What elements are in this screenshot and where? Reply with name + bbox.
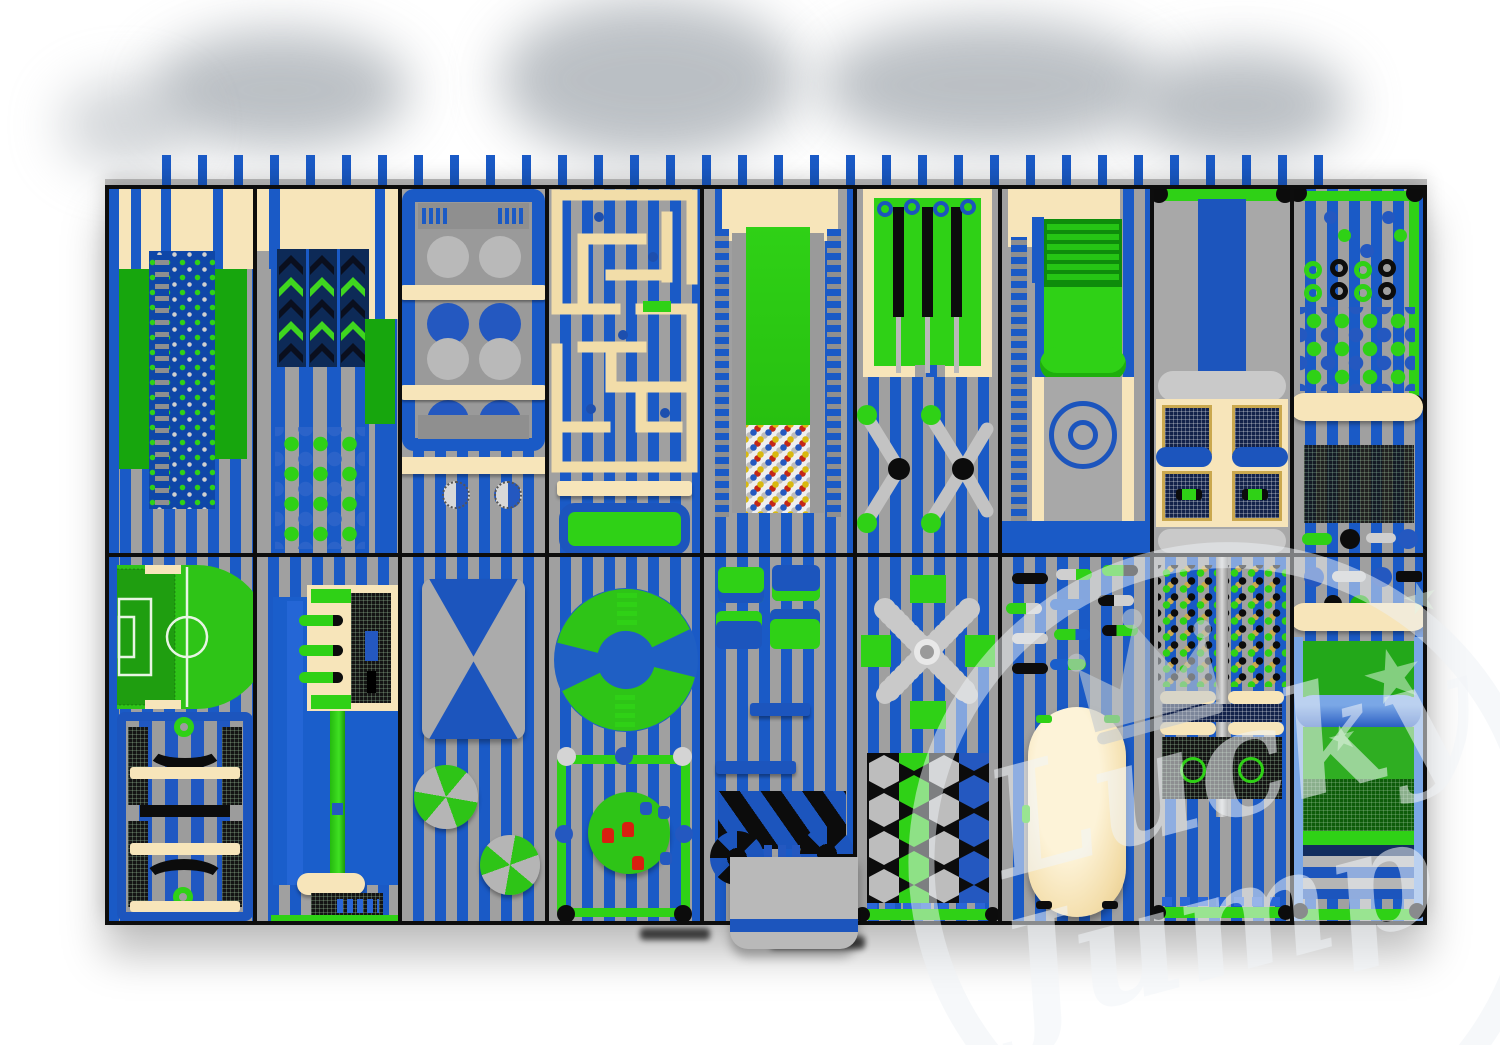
beige-beam [402, 385, 545, 400]
zone-dotwall-trampoline [1154, 557, 1290, 921]
peg-gray-bar [1332, 571, 1366, 582]
side-rail-lblue [1294, 637, 1303, 921]
beige-crossbar [130, 901, 240, 912]
pinwheel-disc [414, 765, 478, 829]
post-ball-gray [557, 747, 576, 766]
climb-ladder [824, 229, 844, 517]
deck-post [131, 189, 141, 269]
pad-capsule [1156, 447, 1212, 467]
hexagon-path [867, 753, 989, 903]
backdrop-shadow [820, 20, 1160, 150]
side-rail [1032, 377, 1044, 521]
blue-roller-tube [1296, 695, 1421, 729]
game-screen [351, 593, 391, 703]
ladder-strip [155, 255, 169, 505]
airbag-grip [1036, 715, 1052, 723]
hold-ring [1354, 261, 1372, 279]
beige-crossbar [130, 843, 240, 855]
hold-ring [1354, 284, 1372, 302]
hold-ring [1330, 259, 1348, 277]
tramp-bed-strip [1162, 704, 1282, 722]
net-panel [1304, 445, 1414, 523]
oval-airbag [1028, 707, 1126, 917]
dot-grid [1300, 307, 1415, 391]
hold-ring [1330, 282, 1348, 300]
post-ball-blue [675, 825, 693, 843]
beige-bench [557, 481, 692, 496]
beige-roller-bar [1294, 393, 1423, 421]
slide-end-roller [1040, 347, 1126, 381]
step-peg [1054, 629, 1090, 640]
zone-climbing-panels [109, 189, 253, 553]
side-net-panel [128, 727, 148, 805]
blue-handle [640, 802, 652, 815]
green-slide-lane [746, 227, 810, 425]
blue-dash-row [1162, 897, 1282, 906]
green-strip [1303, 831, 1414, 845]
tumbling-square [422, 579, 525, 739]
screen-black-mark [367, 671, 376, 693]
zone-dot-wall [1294, 189, 1423, 553]
grip-bar [418, 415, 529, 439]
game-unit-footer [311, 695, 351, 709]
zone-pegs-airbag [1002, 557, 1150, 921]
hold-ring [1304, 261, 1322, 279]
wall-run-stripe [1198, 199, 1246, 377]
green-ring [1180, 757, 1206, 783]
green-end-bar [1158, 907, 1286, 918]
rail-enclosure [557, 755, 690, 917]
grip-handle [1242, 489, 1268, 500]
green-ring [1238, 757, 1264, 783]
corner-bumper [985, 907, 998, 921]
zone-wallrun-trampoline [1154, 189, 1290, 553]
zone-chevron-wall [257, 189, 398, 553]
foam-pit-panel [1162, 737, 1282, 799]
slide-side-lane [732, 233, 746, 513]
screen-blue-mark [365, 631, 378, 661]
step-peg [1012, 573, 1048, 584]
pole-blue-clip [332, 803, 343, 815]
playground-park [105, 155, 1427, 960]
deck-post [1032, 217, 1044, 283]
ball-pit [746, 425, 810, 513]
armchair-blue [772, 565, 820, 601]
pole-black [893, 207, 904, 317]
mesh-trampoline [1303, 779, 1414, 831]
corner-bumper [1406, 189, 1423, 202]
green-climb-mat [215, 269, 247, 459]
zone-ball-course [402, 189, 545, 553]
pole-ring [877, 201, 893, 217]
corner-bumper [1278, 905, 1290, 920]
red-handle [602, 828, 614, 843]
scatter-dot [1382, 211, 1395, 224]
red-handle [632, 856, 644, 870]
airbag-grip [1022, 805, 1030, 823]
zone-lounge-slide [704, 557, 853, 921]
scatter-dot [1394, 229, 1407, 242]
scatter-dot [1360, 244, 1374, 258]
corner-bumper [857, 907, 870, 921]
obstacle-balls [415, 229, 532, 439]
pole-tail [954, 317, 959, 373]
zone-slide-ballpit [704, 189, 853, 553]
backdrop-shadow [500, 0, 800, 160]
green-pole [330, 711, 345, 877]
backdrop-shadow [1130, 50, 1350, 160]
grip-dashes [498, 208, 526, 224]
green-landing-mat [559, 503, 690, 553]
beige-crossbar [130, 767, 240, 779]
zone-soccer-basketball [109, 557, 253, 921]
soccer-field [117, 565, 253, 709]
tramp-beige-bar [1160, 722, 1216, 735]
post-ball-blue [555, 825, 573, 843]
zone-donut [549, 557, 700, 921]
maze-walls [549, 189, 700, 474]
grid-divider-row [105, 553, 1427, 557]
grip-dashes [422, 208, 450, 224]
green-step [299, 645, 343, 656]
side-net-panel [222, 727, 242, 805]
blue-triangle-bottom [422, 659, 525, 739]
step-peg [1012, 633, 1048, 644]
wall-post-teeth [135, 155, 1325, 185]
airbag-grip [1102, 901, 1118, 909]
tramp-beige-bar [1228, 722, 1284, 735]
stool-obstacle [442, 481, 470, 509]
platform-blue-stripe [730, 919, 858, 932]
side-rail-lblue [1414, 637, 1423, 921]
step-band-gray [1303, 878, 1414, 889]
step-band-blue [1303, 889, 1414, 899]
chevron-climb-mat [277, 249, 369, 367]
climb-ladder [1008, 237, 1030, 521]
climb-ladder [712, 229, 732, 517]
step-peg [1006, 603, 1042, 614]
green-mat [1303, 727, 1414, 779]
hold-ring [1378, 259, 1396, 277]
pole-black [922, 207, 933, 317]
peg-black-dot [1340, 529, 1360, 549]
scatter-dot [1338, 229, 1351, 242]
step-peg [1012, 663, 1048, 674]
pole-room-door-gap [915, 365, 945, 377]
hold-ring [1378, 282, 1396, 300]
peg-black-bar [1396, 571, 1422, 582]
step-peg [1102, 625, 1138, 636]
blue-triangle-top [422, 579, 525, 659]
tramp-beige-bar [1228, 691, 1284, 704]
x-spinner [857, 567, 998, 737]
pad-capsule [1232, 447, 1288, 467]
beige-roller-bar [1294, 603, 1423, 631]
green-frame-top [1296, 191, 1421, 201]
spinning-donut [551, 585, 700, 735]
airbag-grip [1036, 901, 1052, 909]
step-band-blue [1303, 867, 1414, 878]
x-obstacles [857, 399, 998, 549]
post-ball-black [557, 905, 575, 921]
pole-ring [960, 199, 976, 215]
pole-black [951, 207, 962, 317]
scatter-dot [1324, 211, 1337, 224]
peg-green-bar [1302, 533, 1332, 545]
black-bar [140, 805, 230, 817]
red-handle [622, 822, 634, 837]
zone-maze [549, 189, 700, 553]
pole-ring [904, 199, 920, 215]
tramp-beige-bar [1160, 691, 1216, 704]
corner-bumper [1409, 903, 1423, 919]
balance-beam [750, 703, 810, 716]
step-band-gray [1303, 856, 1414, 867]
step-peg [1050, 659, 1086, 670]
left-edge-rail [109, 189, 119, 553]
zone-bowtie-mat [402, 557, 545, 921]
airbag-grip [1104, 715, 1120, 723]
peg-blue-dot [1398, 529, 1418, 549]
blue-dash-row [337, 899, 379, 913]
beige-platform [297, 873, 365, 895]
blue-handle [660, 852, 672, 865]
step-peg [1102, 565, 1138, 576]
zone-interactive-wall [257, 557, 398, 921]
green-step [299, 672, 343, 683]
post-ball-black [674, 905, 692, 921]
pinwheel-disc [480, 835, 540, 895]
pole-ring [933, 201, 949, 217]
green-side-mat [365, 319, 395, 424]
balance-beam [716, 761, 796, 774]
cushion-capsule [1158, 371, 1286, 401]
step-peg [1056, 569, 1092, 580]
hoop-arc [146, 731, 224, 769]
step-band-navy [1303, 845, 1414, 856]
zone-x-hex [857, 557, 998, 921]
playground-render-stage: { "app": { "type": "indoor-playground-fl… [0, 0, 1500, 1045]
blue-handle [658, 806, 670, 819]
cushion-capsule [1158, 529, 1286, 553]
green-step [299, 615, 343, 626]
beige-shelf [402, 457, 545, 474]
turntable-disc [588, 792, 670, 874]
pole-tail [896, 317, 901, 373]
armchair-green [770, 609, 820, 649]
peg-blue-dot [1372, 567, 1392, 587]
target-circle-inner [1068, 420, 1098, 450]
armchair-blue [716, 611, 762, 649]
peg-gray-bar [1366, 533, 1396, 543]
blue-floor-corner [1002, 521, 1150, 553]
peg-blue-dot [1304, 567, 1324, 587]
zone-roller-lane [1294, 557, 1423, 921]
side-net-panel [128, 821, 148, 907]
blue-column [287, 601, 303, 885]
zone-roller-slide [1002, 189, 1150, 553]
slide-side-lane [810, 233, 824, 513]
green-climb-mat [119, 269, 149, 469]
grip-handle [1176, 489, 1202, 500]
basketball-lane [117, 712, 253, 921]
side-net-panel [222, 821, 242, 907]
green-end-bar [863, 909, 993, 920]
post-ball-blue [615, 747, 633, 765]
stepping-dot-grid [275, 427, 365, 549]
step-peg [1098, 595, 1134, 606]
game-unit-header [311, 589, 351, 603]
green-end-bar [1298, 909, 1419, 920]
green-mat [1303, 641, 1414, 697]
side-rail [1122, 377, 1134, 521]
armchair-green [718, 567, 764, 603]
grid-border-top [105, 185, 1427, 189]
beige-beam [402, 285, 545, 300]
stool-obstacle [494, 481, 522, 509]
exit-platform [730, 857, 858, 949]
step-peg [1050, 599, 1086, 610]
zone-pole-room [857, 189, 998, 553]
pole-tail [925, 317, 930, 373]
roller-slide-section [1044, 219, 1122, 287]
hold-ring [1304, 284, 1322, 302]
post-ball-gray [673, 747, 692, 766]
